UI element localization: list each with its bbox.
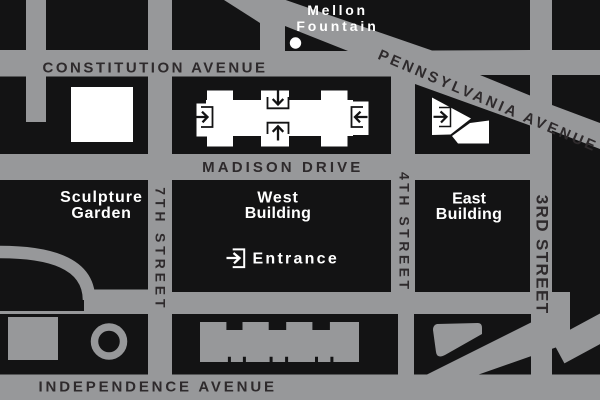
svg-text:Fountain: Fountain (296, 18, 378, 34)
svg-text:7TH STREET: 7TH STREET (153, 187, 169, 311)
svg-text:3RD STREET: 3RD STREET (533, 195, 552, 315)
svg-text:West: West (257, 190, 299, 207)
svg-text:Entrance: Entrance (253, 251, 339, 268)
svg-text:CONSTITUTION AVENUE: CONSTITUTION AVENUE (42, 60, 267, 77)
svg-text:Building: Building (436, 206, 502, 223)
svg-text:Sculpture: Sculpture (60, 189, 143, 206)
svg-text:Mellon: Mellon (307, 2, 368, 18)
svg-text:MADISON DRIVE: MADISON DRIVE (202, 159, 363, 176)
svg-text:4TH STREET: 4TH STREET (396, 172, 412, 293)
svg-text:Garden: Garden (71, 205, 131, 222)
svg-text:East: East (452, 191, 486, 208)
svg-text:INDEPENDENCE AVENUE: INDEPENDENCE AVENUE (39, 379, 277, 396)
svg-text:Building: Building (245, 205, 311, 222)
